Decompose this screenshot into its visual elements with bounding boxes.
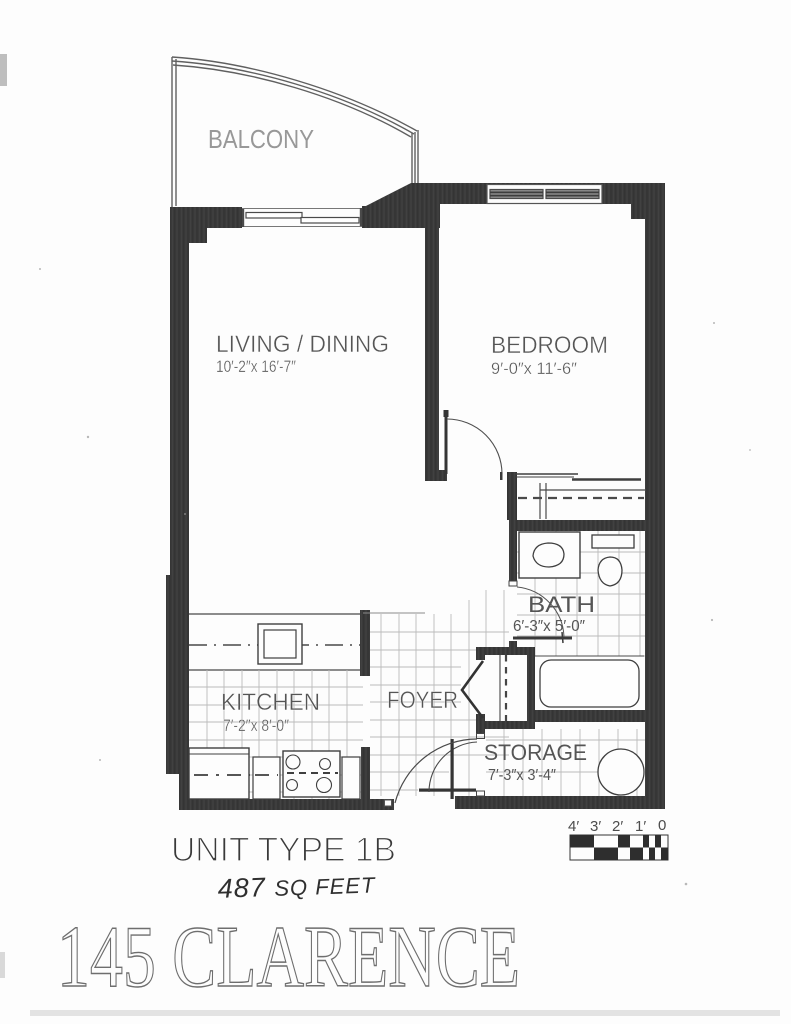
svg-text:FOYER: FOYER — [387, 687, 458, 714]
svg-text:7′-3″x 3′-4″: 7′-3″x 3′-4″ — [488, 767, 556, 784]
svg-text:1′: 1′ — [635, 818, 646, 835]
svg-text:4′: 4′ — [568, 818, 579, 835]
svg-text:3′: 3′ — [590, 818, 601, 835]
svg-text:10′-2″x 16′-7″: 10′-2″x 16′-7″ — [216, 357, 296, 376]
svg-text:BEDROOM: BEDROOM — [491, 332, 608, 359]
svg-text:0: 0 — [658, 817, 666, 834]
svg-text:7′-2″x 8′-0″: 7′-2″x 8′-0″ — [223, 716, 289, 735]
svg-text:BALCONY: BALCONY — [208, 124, 314, 154]
svg-text:LIVING / DINING: LIVING / DINING — [216, 331, 389, 358]
svg-text:2′: 2′ — [612, 818, 623, 835]
svg-text:BATH: BATH — [528, 592, 595, 617]
svg-text:145 CLARENCE: 145 CLARENCE — [57, 909, 520, 1006]
svg-text:9′-0″x 11′-6″: 9′-0″x 11′-6″ — [491, 359, 577, 378]
svg-text:6′-3″x 5′-0″: 6′-3″x 5′-0″ — [513, 618, 585, 635]
svg-text:STORAGE: STORAGE — [484, 740, 587, 765]
svg-text:UNIT TYPE 1B: UNIT TYPE 1B — [171, 831, 396, 869]
svg-text:KITCHEN: KITCHEN — [221, 689, 320, 716]
